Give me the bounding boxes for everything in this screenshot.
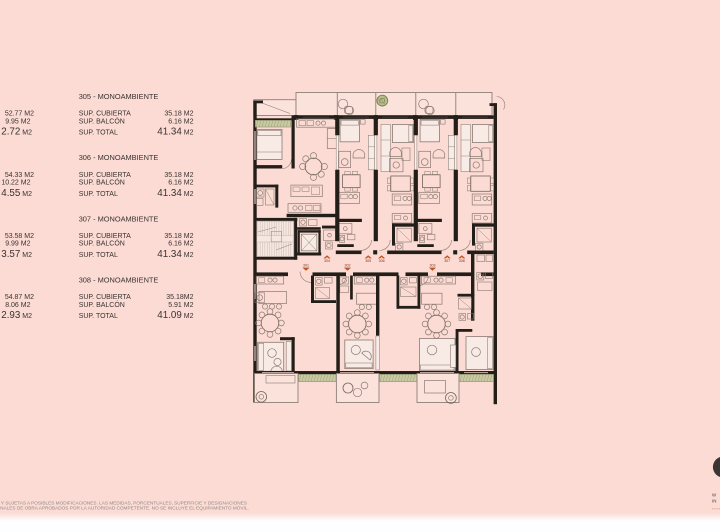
svg-text:SUP. BALCÓN: SUP. BALCÓN	[79, 178, 125, 187]
svg-text:6.16 M2: 6.16 M2	[168, 180, 193, 187]
svg-text:SUP. BALCÓN: SUP. BALCÓN	[79, 300, 125, 309]
svg-text:35.18 M2: 35.18 M2	[164, 233, 193, 240]
svg-text:53.58 M2: 53.58 M2	[5, 233, 34, 240]
svg-text:54.87 M2: 54.87 M2	[5, 294, 34, 301]
svg-text:FINALES DE OBRA APROBADOS POR: FINALES DE OBRA APROBADOS POR LA AUTORID…	[0, 505, 249, 511]
svg-text:SUP. CUBIERTA: SUP. CUBIERTA	[79, 111, 131, 118]
svg-text:303: 303	[430, 263, 436, 267]
svg-text:SUP. TOTAL: SUP. TOTAL	[79, 191, 118, 198]
svg-text:35.18 M2: 35.18 M2	[164, 172, 193, 179]
svg-text:9.95 M2: 9.95 M2	[5, 118, 30, 125]
svg-text:SUP. CUBIERTA: SUP. CUBIERTA	[79, 294, 131, 301]
svg-text:35.18M2: 35.18M2	[166, 294, 193, 301]
svg-text:SUP. CUBIERTA: SUP. CUBIERTA	[79, 172, 131, 179]
svg-text:308 - MONOAMBIENTE: 308 - MONOAMBIENTE	[79, 276, 159, 285]
svg-text:54.33 M2: 54.33 M2	[5, 172, 34, 179]
svg-text:10.22 M2: 10.22 M2	[1, 180, 30, 187]
svg-text:306 - MONOAMBIENTE: 306 - MONOAMBIENTE	[79, 153, 159, 162]
svg-text:306: 306	[379, 259, 385, 263]
svg-text:6.16 M2: 6.16 M2	[168, 241, 193, 248]
svg-text:52.77 M2: 52.77 M2	[5, 111, 34, 118]
svg-text:SUP. TOTAL: SUP. TOTAL	[79, 313, 118, 320]
svg-text:304: 304	[324, 259, 330, 263]
svg-text:8.06 M2: 8.06 M2	[5, 302, 30, 309]
svg-text:SUP. CUBIERTA: SUP. CUBIERTA	[79, 233, 131, 240]
svg-text:302: 302	[345, 263, 351, 267]
svg-text:IN: IN	[712, 499, 716, 504]
svg-text:SUP. TOTAL: SUP. TOTAL	[79, 252, 118, 259]
svg-text:SUP. BALCÓN: SUP. BALCÓN	[79, 239, 125, 248]
svg-text:301: 301	[303, 263, 309, 267]
svg-text:305 - MONOAMBIENTE: 305 - MONOAMBIENTE	[79, 92, 159, 101]
svg-text:SUP. TOTAL: SUP. TOTAL	[79, 130, 118, 137]
svg-text:35.18 M2: 35.18 M2	[164, 111, 193, 118]
svg-text:305: 305	[365, 259, 371, 263]
svg-text:6.16 M2: 6.16 M2	[168, 118, 193, 125]
svg-text:9.99 M2: 9.99 M2	[5, 241, 30, 248]
svg-text:308: 308	[459, 259, 465, 263]
svg-text:5.91 M2: 5.91 M2	[168, 302, 193, 309]
svg-text:307 - MONOAMBIENTE: 307 - MONOAMBIENTE	[79, 214, 159, 223]
svg-text:SUP. BALCÓN: SUP. BALCÓN	[79, 116, 125, 125]
svg-text:307: 307	[444, 259, 450, 263]
